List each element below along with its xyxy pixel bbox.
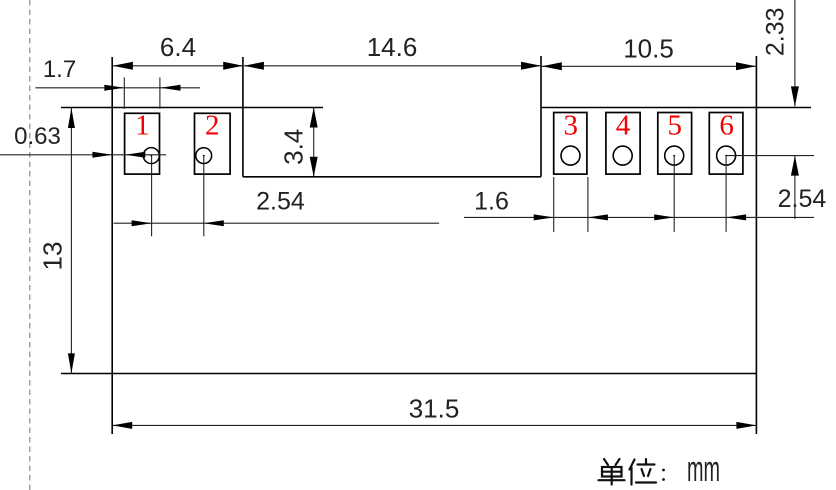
- svg-text:2.33: 2.33: [762, 7, 790, 56]
- svg-text:2.54: 2.54: [256, 188, 305, 216]
- svg-text:2.54: 2.54: [778, 185, 827, 213]
- svg-text:6.4: 6.4: [160, 32, 196, 62]
- svg-text:mm: mm: [687, 450, 720, 490]
- svg-text:1.7: 1.7: [43, 56, 76, 83]
- svg-text:4: 4: [616, 110, 631, 142]
- svg-text:3: 3: [564, 110, 579, 142]
- svg-text:1: 1: [135, 110, 150, 142]
- svg-text:0.63: 0.63: [14, 123, 61, 150]
- svg-text:13: 13: [37, 242, 67, 271]
- svg-text:3.4: 3.4: [279, 129, 309, 165]
- svg-text:1.6: 1.6: [474, 187, 509, 215]
- svg-text:6: 6: [719, 110, 734, 142]
- svg-text:10.5: 10.5: [623, 34, 674, 64]
- svg-text:31.5: 31.5: [409, 393, 460, 423]
- svg-text:14.6: 14.6: [367, 32, 418, 62]
- svg-text:5: 5: [667, 110, 682, 142]
- svg-text:2: 2: [205, 110, 220, 142]
